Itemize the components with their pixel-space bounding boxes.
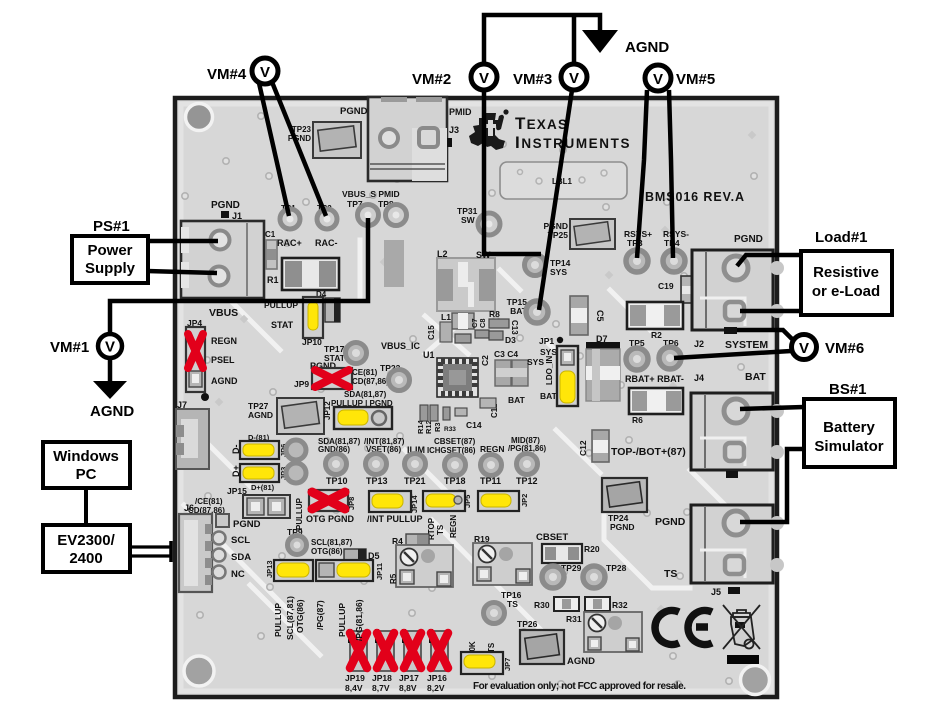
svg-text:C13: C13 bbox=[510, 320, 519, 335]
svg-text:REGN: REGN bbox=[211, 336, 237, 346]
svg-text:R8: R8 bbox=[489, 309, 500, 319]
svg-text:EV2300/: EV2300/ bbox=[57, 532, 115, 549]
svg-text:PGND: PGND bbox=[340, 106, 368, 117]
svg-text:J5: J5 bbox=[711, 587, 721, 597]
svg-text:TP28: TP28 bbox=[606, 563, 627, 573]
svg-text:TS: TS bbox=[507, 599, 518, 609]
svg-text:CBSET: CBSET bbox=[536, 532, 568, 543]
svg-text:PGND: PGND bbox=[211, 200, 240, 211]
svg-text:TP10: TP10 bbox=[326, 476, 348, 486]
svg-text:C1: C1 bbox=[265, 230, 276, 239]
svg-text:R12: R12 bbox=[424, 420, 433, 434]
svg-text:STAT: STAT bbox=[271, 320, 294, 330]
svg-text:INSTRUMENTS: INSTRUMENTS bbox=[515, 133, 631, 152]
svg-text:TOP-/BOT+(87): TOP-/BOT+(87) bbox=[611, 446, 686, 458]
svg-text:BMS016 REV.A: BMS016 REV.A bbox=[645, 190, 745, 204]
svg-text:SW: SW bbox=[461, 215, 476, 225]
svg-text:AGND: AGND bbox=[90, 403, 134, 420]
svg-text:PULLUP: PULLUP bbox=[273, 603, 283, 637]
svg-text:C5: C5 bbox=[595, 310, 605, 322]
svg-text:JP17: JP17 bbox=[399, 673, 419, 683]
svg-text:V: V bbox=[105, 339, 115, 356]
svg-text:8,8V: 8,8V bbox=[399, 683, 417, 693]
svg-text:RAC+: RAC+ bbox=[277, 238, 302, 248]
svg-text:PGND: PGND bbox=[734, 234, 763, 245]
svg-text:VM#2: VM#2 bbox=[412, 71, 451, 88]
svg-text:U1: U1 bbox=[423, 350, 435, 360]
svg-text:8,2V: 8,2V bbox=[427, 683, 445, 693]
svg-text:JP14: JP14 bbox=[410, 495, 419, 513]
svg-text:VM#3: VM#3 bbox=[513, 71, 552, 88]
svg-text:/PG(87): /PG(87) bbox=[315, 600, 325, 630]
svg-text:BAT: BAT bbox=[540, 391, 558, 401]
svg-text:JP10: JP10 bbox=[302, 337, 322, 347]
svg-text:VM#1: VM#1 bbox=[50, 339, 89, 356]
svg-text:C14: C14 bbox=[466, 420, 482, 430]
svg-text:V: V bbox=[653, 71, 663, 88]
svg-text:/INT PULLUP: /INT PULLUP bbox=[367, 514, 423, 524]
svg-text:V: V bbox=[479, 70, 489, 87]
svg-text:8,7V: 8,7V bbox=[372, 683, 390, 693]
svg-text:C12: C12 bbox=[578, 440, 588, 456]
svg-text:PC: PC bbox=[76, 466, 97, 483]
svg-text:/CE(81): /CE(81) bbox=[195, 497, 223, 506]
svg-text:V: V bbox=[799, 340, 809, 357]
svg-text:R31: R31 bbox=[566, 614, 582, 624]
svg-text:Supply: Supply bbox=[85, 260, 136, 277]
svg-text:TP26: TP26 bbox=[517, 619, 538, 629]
svg-text:TP12: TP12 bbox=[516, 476, 538, 486]
svg-text:2400: 2400 bbox=[69, 550, 102, 567]
svg-text:C2: C2 bbox=[480, 355, 490, 366]
svg-text:R2: R2 bbox=[651, 330, 662, 340]
svg-text:R20: R20 bbox=[584, 544, 600, 554]
svg-text:V: V bbox=[260, 64, 270, 81]
svg-text:C19: C19 bbox=[658, 281, 674, 291]
svg-text:L1: L1 bbox=[441, 312, 451, 322]
svg-text:BAT: BAT bbox=[508, 395, 526, 405]
svg-text:LDO_IN: LDO_IN bbox=[545, 355, 554, 385]
svg-text:PSEL: PSEL bbox=[211, 355, 235, 365]
svg-text:PMID: PMID bbox=[449, 107, 472, 117]
svg-text:TS: TS bbox=[436, 524, 445, 535]
svg-text:LBL1: LBL1 bbox=[552, 177, 573, 186]
svg-text:SYS: SYS bbox=[550, 267, 567, 277]
svg-text:SCL: SCL bbox=[231, 535, 250, 546]
svg-text:or e-Load: or e-Load bbox=[812, 283, 880, 300]
svg-text:AGND: AGND bbox=[248, 410, 273, 420]
svg-text:TEXAS: TEXAS bbox=[515, 114, 568, 133]
svg-text:JP11: JP11 bbox=[375, 563, 384, 580]
svg-text:VBUS: VBUS bbox=[209, 307, 238, 319]
svg-text:AGND: AGND bbox=[211, 376, 238, 386]
svg-text:D3: D3 bbox=[505, 335, 516, 345]
svg-text:PULLUP: PULLUP bbox=[295, 497, 304, 530]
svg-text:JP19: JP19 bbox=[345, 673, 365, 683]
svg-text:Load#1: Load#1 bbox=[815, 229, 868, 246]
svg-text:NC: NC bbox=[231, 569, 245, 580]
svg-text:BAT: BAT bbox=[745, 371, 766, 383]
svg-text:SDA(81,87): SDA(81,87) bbox=[344, 390, 387, 399]
svg-text:RBAT+ RBAT-: RBAT+ RBAT- bbox=[625, 374, 684, 384]
svg-text:For evaluation only; not FCC a: For evaluation only; not FCC approved fo… bbox=[473, 681, 686, 692]
svg-text:Simulator: Simulator bbox=[814, 438, 883, 455]
svg-text:R33: R33 bbox=[444, 426, 456, 433]
svg-text:/PG(81,86): /PG(81,86) bbox=[354, 599, 364, 641]
svg-text:R30: R30 bbox=[534, 600, 550, 610]
svg-text:PULLUP: PULLUP bbox=[337, 603, 347, 637]
svg-text:Windows: Windows bbox=[53, 448, 119, 465]
svg-text:JP5: JP5 bbox=[463, 495, 472, 508]
svg-text:AGND: AGND bbox=[567, 656, 595, 667]
svg-text:J3: J3 bbox=[449, 125, 459, 135]
svg-text:J6: J6 bbox=[184, 503, 194, 513]
svg-text:8,4V: 8,4V bbox=[345, 683, 363, 693]
svg-text:PGND: PGND bbox=[655, 516, 686, 528]
svg-text:JP9: JP9 bbox=[294, 379, 309, 389]
svg-text:VM#4: VM#4 bbox=[207, 66, 247, 83]
svg-text:R3: R3 bbox=[433, 422, 442, 432]
svg-text:CD(87,86): CD(87,86) bbox=[352, 377, 389, 386]
svg-text:CBSET(87): CBSET(87) bbox=[434, 437, 476, 446]
svg-text:TP18: TP18 bbox=[444, 476, 466, 486]
svg-text:VM#6: VM#6 bbox=[825, 340, 864, 357]
svg-text:JP16: JP16 bbox=[427, 673, 447, 683]
svg-text:J4: J4 bbox=[694, 373, 704, 383]
svg-text:Resistive: Resistive bbox=[813, 264, 879, 281]
svg-text:SYSTEM: SYSTEM bbox=[725, 339, 768, 351]
svg-text:CE(81): CE(81) bbox=[352, 368, 378, 377]
svg-text:VBUS_IC: VBUS_IC bbox=[381, 341, 421, 351]
svg-text:R1: R1 bbox=[267, 275, 279, 285]
svg-text:JP12: JP12 bbox=[323, 401, 332, 420]
svg-text:C3 C4: C3 C4 bbox=[494, 349, 518, 359]
svg-text:SCL(81,87): SCL(81,87) bbox=[311, 538, 353, 547]
svg-text:JP13: JP13 bbox=[265, 560, 274, 578]
svg-text:TP13: TP13 bbox=[366, 476, 388, 486]
svg-text:REGN: REGN bbox=[449, 515, 458, 538]
svg-text:SYS: SYS bbox=[540, 347, 557, 357]
svg-text:OTG(86): OTG(86) bbox=[311, 547, 343, 556]
svg-text:J2: J2 bbox=[694, 339, 704, 349]
svg-text:R6: R6 bbox=[632, 415, 643, 425]
svg-text:SYS: SYS bbox=[527, 357, 544, 367]
svg-text:TP21: TP21 bbox=[404, 476, 426, 486]
svg-text:Battery: Battery bbox=[823, 419, 875, 436]
svg-text:Power: Power bbox=[87, 242, 132, 259]
svg-text:JP18: JP18 bbox=[372, 673, 392, 683]
svg-text:OTG(86): OTG(86) bbox=[295, 599, 305, 633]
svg-text:J1: J1 bbox=[232, 211, 242, 221]
svg-text:VBUS_S PMID: VBUS_S PMID bbox=[342, 189, 400, 199]
svg-text:SDA: SDA bbox=[231, 552, 251, 563]
svg-text:PGND: PGND bbox=[233, 519, 261, 530]
svg-text:JP8: JP8 bbox=[347, 497, 356, 510]
svg-text:SCL(87,81): SCL(87,81) bbox=[285, 596, 295, 640]
svg-text:R32: R32 bbox=[612, 600, 628, 610]
svg-text:TS: TS bbox=[664, 568, 677, 580]
svg-text:PS#1: PS#1 bbox=[93, 218, 130, 235]
svg-text:JP1: JP1 bbox=[539, 336, 554, 346]
svg-text:JP7: JP7 bbox=[503, 658, 512, 671]
svg-text:BS#1: BS#1 bbox=[829, 381, 867, 398]
svg-text:V: V bbox=[569, 70, 579, 87]
svg-text:D+(81): D+(81) bbox=[251, 483, 275, 492]
svg-text:PGND: PGND bbox=[610, 522, 635, 532]
svg-text:C8: C8 bbox=[478, 318, 487, 328]
svg-text:D+: D+ bbox=[231, 465, 241, 477]
svg-text:VM#5: VM#5 bbox=[676, 71, 715, 88]
svg-text:C15: C15 bbox=[427, 325, 436, 340]
svg-text:TP11: TP11 bbox=[480, 476, 501, 486]
svg-text:AGND: AGND bbox=[625, 39, 669, 56]
svg-text:OTG PGND: OTG PGND bbox=[306, 514, 355, 524]
svg-text:JP2: JP2 bbox=[520, 494, 529, 507]
svg-text:RAC-: RAC- bbox=[315, 238, 338, 248]
svg-text:R5: R5 bbox=[389, 573, 398, 584]
